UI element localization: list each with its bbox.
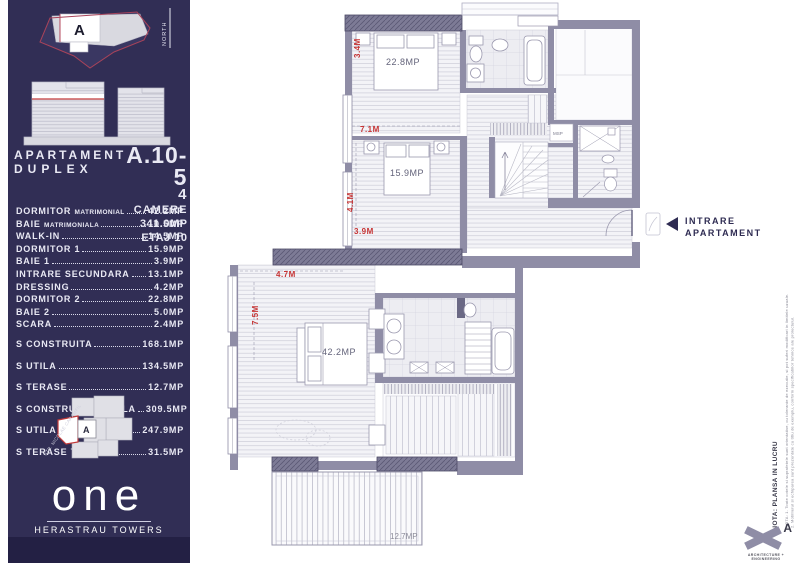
room-row: SCARA2.4MP bbox=[16, 319, 184, 329]
staircase bbox=[495, 142, 548, 198]
apartment-code: A.10-5 bbox=[126, 144, 187, 188]
room-row: WALK-IN14.5MP bbox=[16, 231, 184, 241]
site-plan-tower-a-label: A bbox=[74, 22, 85, 39]
total-row: S UTILA134.5MP bbox=[16, 361, 184, 371]
building-elevations bbox=[22, 80, 172, 148]
msp-label: MSP bbox=[553, 131, 563, 136]
location-map: A STR. NICOLAE CARAMFIL bbox=[38, 392, 158, 472]
master-area-label: 42.2MP bbox=[322, 347, 356, 357]
brand-logo: one HERASTRAU TOWERS bbox=[8, 474, 190, 542]
sidebar-footer-strip bbox=[8, 537, 190, 563]
room-row: BAIE 13.9MP bbox=[16, 256, 184, 266]
dim-3-4m: 3.4M bbox=[353, 38, 362, 58]
total-row: S TERASE12.7MP bbox=[16, 382, 184, 392]
map-tower-a-label: A bbox=[83, 425, 90, 435]
room-row: DORMITOR 115.9MP bbox=[16, 244, 184, 254]
dim-3-9m: 3.9M bbox=[354, 227, 374, 236]
room-row: DORMITOR 222.8MP bbox=[16, 294, 184, 304]
fine-print-notes: NOTA: 1. Toate cotele si suprafetele sun… bbox=[784, 128, 795, 528]
dim-4-1m: 4.1M bbox=[346, 192, 355, 212]
dormitor-2-area-label: 22.8MP bbox=[386, 57, 420, 67]
north-label: NORTH bbox=[162, 22, 168, 46]
site-plan: A NORTH bbox=[22, 2, 180, 80]
terrace-area-label: 12.7MP bbox=[390, 532, 418, 541]
total-row: S CONSTRUITA168.1MP bbox=[16, 339, 184, 349]
duplex-label: DUPLEX bbox=[14, 162, 126, 176]
brand-name: one bbox=[8, 474, 190, 518]
rooms-count: 4 bbox=[178, 186, 187, 203]
room-row: DORMITOR MATRIMONIAL42.2MP bbox=[16, 206, 184, 216]
room-row: DRESSING4.2MP bbox=[16, 282, 184, 292]
entrance-label-line1: INTRARE bbox=[685, 216, 736, 226]
fine-print-line1: NOTA: 1. Toate cotele si suprafetele sun… bbox=[784, 293, 789, 528]
logo-rule-top bbox=[47, 521, 151, 522]
firm-caption: ARCHITECTURE + ENGINEERING bbox=[740, 553, 792, 561]
room-row: INTRARE SECUNDARA13.1MP bbox=[16, 269, 184, 279]
architecture-firm-logo: A ARCHITECTURE + ENGINEERING bbox=[740, 521, 792, 561]
dim-4-7m: 4.7M bbox=[276, 270, 296, 279]
room-row: BAIE MATRIMONIALA10.5MP bbox=[16, 219, 184, 229]
fine-print-line2: 2. Mobilierul si echiparea sunt prezenta… bbox=[790, 317, 795, 528]
floor-fills bbox=[238, 28, 632, 457]
roof-ledge bbox=[462, 3, 558, 26]
entrance-label-line2: APARTAMENT bbox=[685, 228, 762, 238]
entrance-arrow-icon bbox=[666, 217, 678, 231]
brand-subtitle: HERASTRAU TOWERS bbox=[8, 525, 190, 535]
dormitor-1-area-label: 15.9MP bbox=[390, 168, 424, 178]
dim-7-1m: 7.1M bbox=[360, 125, 380, 134]
terrace: 12.7MP bbox=[272, 472, 422, 545]
sidebar: A NORTH APARTAMENT DUPLEX A.10-5 4 CAMER… bbox=[8, 0, 190, 563]
dim-7-5m: 7.5M bbox=[251, 305, 260, 325]
firm-mark-letter: A bbox=[783, 521, 792, 535]
room-row: BAIE 25.0MP bbox=[16, 307, 184, 317]
status-note: NOTA: PLANSA IN LUCRU bbox=[772, 441, 779, 531]
apartament-label: APARTAMENT bbox=[14, 148, 126, 162]
